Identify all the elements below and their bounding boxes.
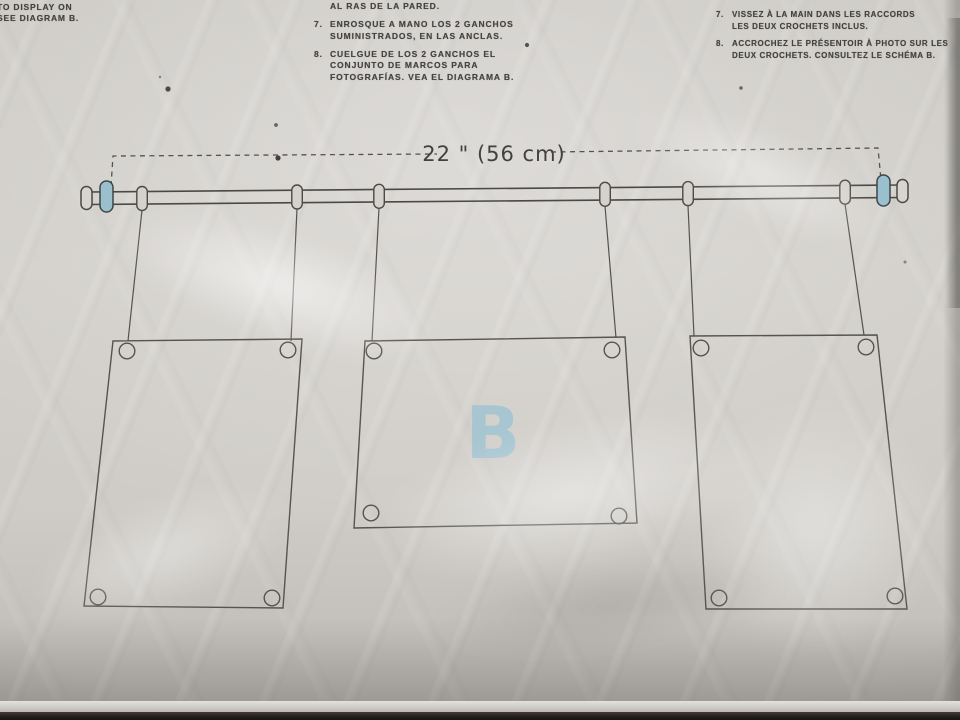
hanging-wires bbox=[128, 204, 864, 341]
corner-hole bbox=[280, 342, 296, 358]
dimension-line-left bbox=[111, 154, 437, 186]
wall-hook-left bbox=[100, 181, 113, 212]
hanger-loop-1 bbox=[137, 187, 148, 211]
hanging-rod bbox=[81, 175, 908, 212]
corner-hole bbox=[90, 589, 106, 605]
corner-hole bbox=[264, 590, 280, 606]
speck bbox=[904, 261, 907, 264]
hanger-loop-2 bbox=[292, 185, 303, 209]
dimension-label: 22 " (56 cm) bbox=[422, 142, 566, 166]
hanging-wire-6 bbox=[845, 204, 864, 335]
frame-outline bbox=[84, 339, 302, 608]
hanger-loop-5 bbox=[683, 182, 694, 206]
corner-hole bbox=[611, 508, 627, 524]
hanger-loop-3 bbox=[374, 184, 385, 208]
photo-frame-left bbox=[84, 339, 302, 608]
corner-hole bbox=[693, 340, 709, 356]
hanging-wire-2 bbox=[291, 209, 297, 342]
rod-bottom-edge bbox=[88, 198, 903, 205]
rod-end-cap-left bbox=[81, 187, 92, 210]
corner-hole bbox=[363, 505, 379, 521]
photo-frame-right bbox=[690, 335, 907, 609]
hanger-loop-4 bbox=[600, 182, 611, 206]
rod-top-edge bbox=[88, 185, 903, 192]
corner-hole bbox=[711, 590, 727, 606]
speck bbox=[275, 155, 280, 160]
wall-hook-right bbox=[877, 175, 890, 206]
hanger-loops bbox=[137, 180, 851, 210]
corner-hole bbox=[858, 339, 874, 355]
package-bottom-edge bbox=[0, 712, 960, 720]
hanging-wire-5 bbox=[688, 206, 694, 337]
corner-hole bbox=[366, 343, 382, 359]
speck bbox=[274, 123, 278, 127]
speck bbox=[525, 43, 529, 47]
hanging-wire-4 bbox=[605, 206, 616, 338]
hanging-wire-3 bbox=[372, 208, 379, 341]
hanging-frames-diagram: B 22 " (56 cm) bbox=[0, 0, 960, 720]
rod-end-cap-right bbox=[897, 180, 908, 203]
hanger-loop-6 bbox=[840, 180, 851, 204]
package-bottom-edge-highlight bbox=[0, 701, 960, 712]
speck bbox=[159, 76, 161, 78]
dimension-line-right bbox=[551, 148, 881, 180]
corner-hole bbox=[119, 343, 135, 359]
hanging-wire-1 bbox=[128, 210, 142, 341]
corner-hole bbox=[887, 588, 903, 604]
corner-hole bbox=[604, 342, 620, 358]
speck bbox=[739, 86, 742, 89]
speck bbox=[165, 86, 170, 91]
frame-outline bbox=[690, 335, 907, 609]
diagram-label-b: B bbox=[466, 391, 521, 475]
